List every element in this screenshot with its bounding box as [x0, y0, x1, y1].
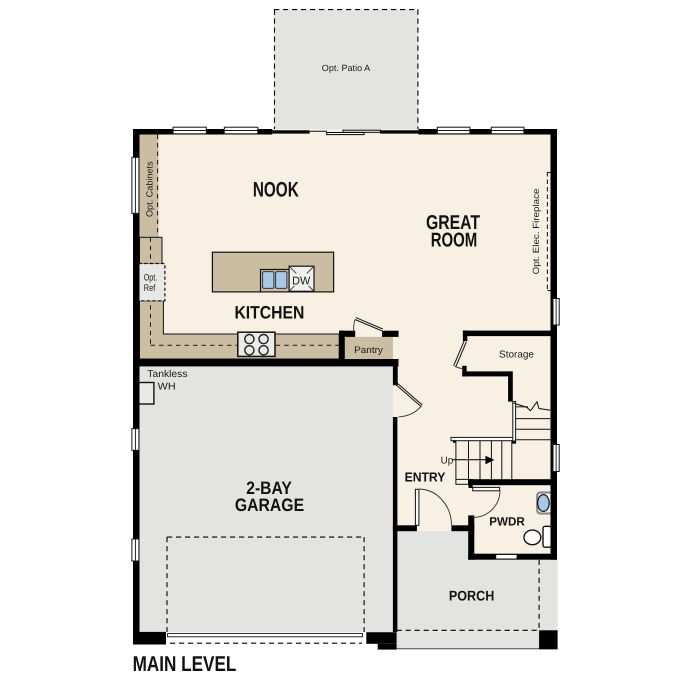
svg-text:Storage: Storage — [499, 350, 534, 361]
svg-text:Opt.: Opt. — [144, 273, 158, 284]
svg-text:ROOM: ROOM — [431, 230, 478, 252]
svg-text:KITCHEN: KITCHEN — [234, 303, 304, 323]
svg-text:DW: DW — [292, 275, 310, 287]
svg-text:Ref: Ref — [144, 283, 156, 294]
svg-text:Tankless: Tankless — [147, 369, 187, 380]
svg-text:Pantry: Pantry — [354, 345, 383, 356]
svg-text:ENTRY: ENTRY — [405, 470, 446, 485]
svg-text:PORCH: PORCH — [449, 588, 494, 604]
svg-text:Opt. Elec. Fireplace: Opt. Elec. Fireplace — [531, 189, 541, 275]
svg-text:NOOK: NOOK — [253, 178, 299, 201]
svg-text:Opt. Patio A: Opt. Patio A — [322, 63, 370, 73]
svg-text:PWDR: PWDR — [489, 514, 525, 528]
svg-text:Up: Up — [441, 455, 454, 466]
svg-text:GARAGE: GARAGE — [235, 495, 304, 515]
svg-text:Opt. Cabinets: Opt. Cabinets — [145, 161, 155, 217]
svg-text:MAIN LEVEL: MAIN LEVEL — [133, 652, 237, 676]
svg-text:WH: WH — [158, 382, 176, 393]
